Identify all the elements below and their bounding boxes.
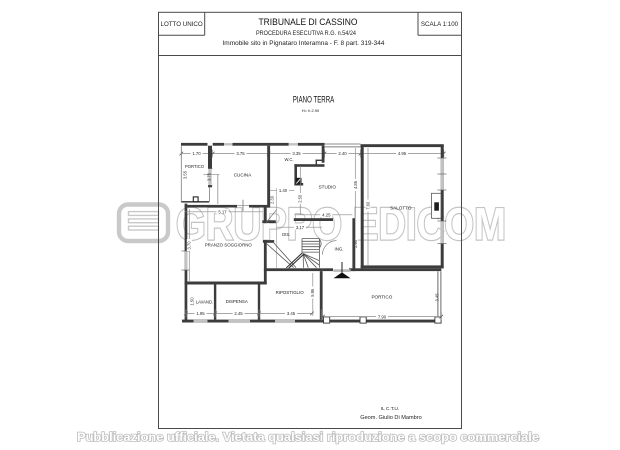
svg-text:PORTICO: PORTICO <box>371 295 392 300</box>
svg-text:RIPOSTIGLIO: RIPOSTIGLIO <box>276 290 305 295</box>
svg-text:3.35: 3.35 <box>292 151 301 156</box>
svg-text:W.C.: W.C. <box>284 157 293 162</box>
svg-text:1.70: 1.70 <box>192 151 201 156</box>
svg-text:5.95: 5.95 <box>310 288 315 297</box>
svg-text:SCALA 1:100: SCALA 1:100 <box>421 21 459 28</box>
svg-text:DIS.: DIS. <box>282 232 290 237</box>
svg-text:Immobile sito in Pignataro Int: Immobile sito in Pignataro Interamna - F… <box>223 40 385 47</box>
svg-text:SALOTTO: SALOTTO <box>390 206 412 211</box>
svg-text:5.17: 5.17 <box>218 210 227 215</box>
svg-text:2.45: 2.45 <box>234 311 243 316</box>
svg-text:ING.: ING. <box>334 247 343 252</box>
svg-text:1.40: 1.40 <box>279 188 288 193</box>
svg-text:7.90: 7.90 <box>378 314 387 319</box>
svg-text:Pubblicazione ufficiale. Vieta: Pubblicazione ufficiale. Vietata qualsia… <box>77 431 540 444</box>
svg-text:PRANZO SOGGIORNO: PRANZO SOGGIORNO <box>205 242 253 247</box>
svg-text:TRIBUNALE DI CASSINO: TRIBUNALE DI CASSINO <box>259 16 358 27</box>
svg-text:PROCEDURA ESECUTIVA R.G. n.54/: PROCEDURA ESECUTIVA R.G. n.54/24 <box>256 30 356 37</box>
svg-text:PORTICO: PORTICO <box>185 164 205 169</box>
svg-text:CUCINA: CUCINA <box>234 173 253 178</box>
svg-text:STUDIO: STUDIO <box>319 185 337 190</box>
svg-text:7.60: 7.60 <box>365 201 370 210</box>
svg-text:H= h.2.90: H= h.2.90 <box>302 108 320 113</box>
svg-text:2.50: 2.50 <box>298 194 303 203</box>
svg-text:3.17: 3.17 <box>296 225 305 230</box>
svg-text:3.75: 3.75 <box>236 151 245 156</box>
svg-text:4.95: 4.95 <box>398 151 407 156</box>
svg-text:LAVAND.: LAVAND. <box>196 300 213 305</box>
svg-text:3.55: 3.55 <box>183 170 188 179</box>
svg-text:PIANO TERRA: PIANO TERRA <box>293 95 335 105</box>
svg-text:2.40: 2.40 <box>338 151 347 156</box>
svg-text:4.25: 4.25 <box>322 212 331 217</box>
svg-text:DISPENSA: DISPENSA <box>226 299 248 304</box>
svg-text:4.85: 4.85 <box>353 180 358 189</box>
svg-text:Geom. Giulio Di Mambro: Geom. Giulio Di Mambro <box>360 415 422 421</box>
svg-text:LOTTO UNICO: LOTTO UNICO <box>161 21 203 28</box>
svg-text:3.75: 3.75 <box>206 172 211 181</box>
svg-text:3.45: 3.45 <box>435 293 440 302</box>
svg-text:3.70: 3.70 <box>187 241 192 250</box>
svg-text:IL C.T.U.: IL C.T.U. <box>381 406 399 412</box>
svg-text:1.50: 1.50 <box>190 297 195 306</box>
svg-text:1.95: 1.95 <box>196 311 205 316</box>
svg-text:3.45: 3.45 <box>287 311 296 316</box>
svg-text:2.30: 2.30 <box>270 195 275 204</box>
